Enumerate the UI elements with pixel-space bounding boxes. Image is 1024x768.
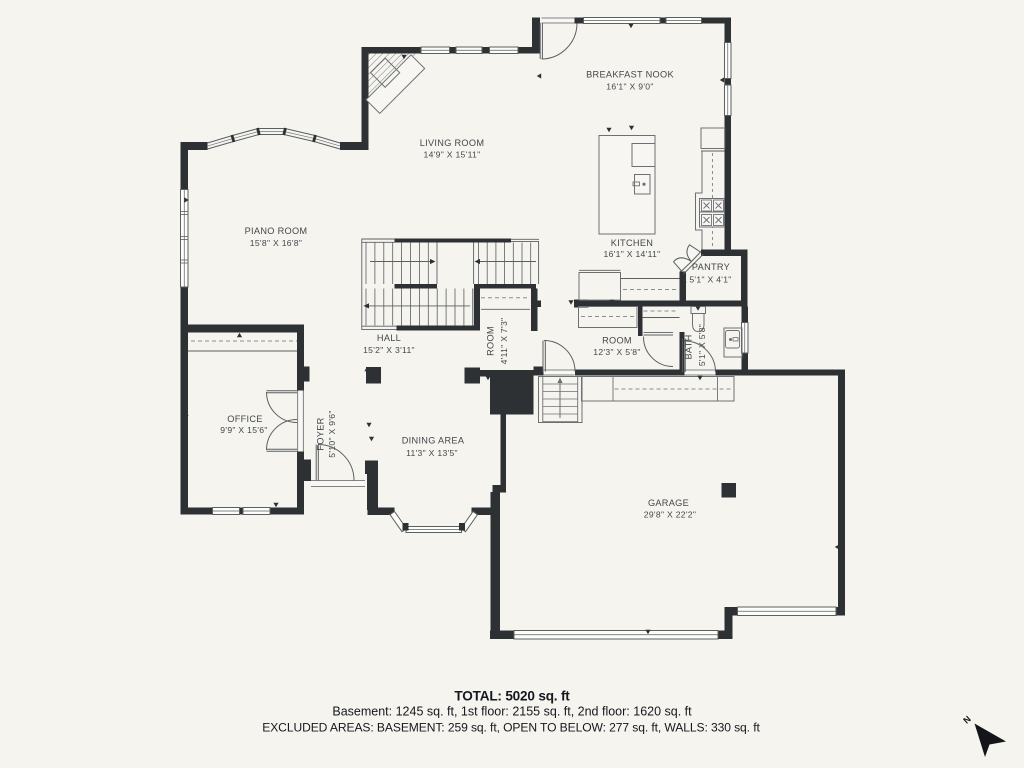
- svg-text:DINING AREA: DINING AREA: [402, 436, 465, 446]
- svg-text:BREAKFAST NOOK: BREAKFAST NOOK: [586, 70, 674, 80]
- svg-text:ROOM: ROOM: [602, 336, 632, 346]
- svg-text:12'3" X 5'8": 12'3" X 5'8": [593, 347, 640, 357]
- svg-text:ROOM: ROOM: [486, 326, 496, 356]
- svg-text:14'9" X 15'11": 14'9" X 15'11": [424, 150, 481, 160]
- svg-text:9'9" X 15'6": 9'9" X 15'6": [220, 425, 267, 435]
- svg-text:11'3" X 13'5": 11'3" X 13'5": [406, 448, 458, 458]
- svg-text:LIVING ROOM: LIVING ROOM: [420, 138, 485, 148]
- svg-text:Basement: 1245 sq. ft, 1st flo: Basement: 1245 sq. ft, 1st floor: 2155 s…: [332, 705, 692, 719]
- svg-text:EXCLUDED AREAS: BASEMENT: 259: EXCLUDED AREAS: BASEMENT: 259 sq. ft, OP…: [262, 721, 760, 735]
- svg-text:HALL: HALL: [377, 333, 401, 343]
- svg-text:PANTRY: PANTRY: [692, 262, 730, 272]
- svg-text:BATH: BATH: [684, 334, 694, 359]
- svg-text:16'1" X 9'0": 16'1" X 9'0": [606, 82, 653, 92]
- svg-text:4'11" X 7'3": 4'11" X 7'3": [499, 318, 509, 365]
- svg-text:FOYER: FOYER: [316, 417, 326, 450]
- svg-text:GARAGE: GARAGE: [648, 498, 689, 508]
- svg-text:15'8" X 16'8": 15'8" X 16'8": [250, 238, 302, 248]
- svg-text:5'1" X 4'1": 5'1" X 4'1": [689, 275, 731, 285]
- svg-text:TOTAL: 5020 sq. ft: TOTAL: 5020 sq. ft: [454, 689, 570, 704]
- svg-text:OFFICE: OFFICE: [227, 414, 263, 424]
- svg-text:PIANO ROOM: PIANO ROOM: [245, 226, 308, 236]
- svg-text:5'1" X 5'8": 5'1" X 5'8": [697, 324, 707, 366]
- svg-text:KITCHEN: KITCHEN: [611, 238, 653, 248]
- svg-text:16'1" X 14'11": 16'1" X 14'11": [604, 249, 661, 259]
- svg-text:29'8" X 22'2": 29'8" X 22'2": [644, 510, 696, 520]
- svg-text:15'2" X 3'11": 15'2" X 3'11": [363, 345, 415, 355]
- svg-text:5'10" X 9'6": 5'10" X 9'6": [327, 410, 337, 457]
